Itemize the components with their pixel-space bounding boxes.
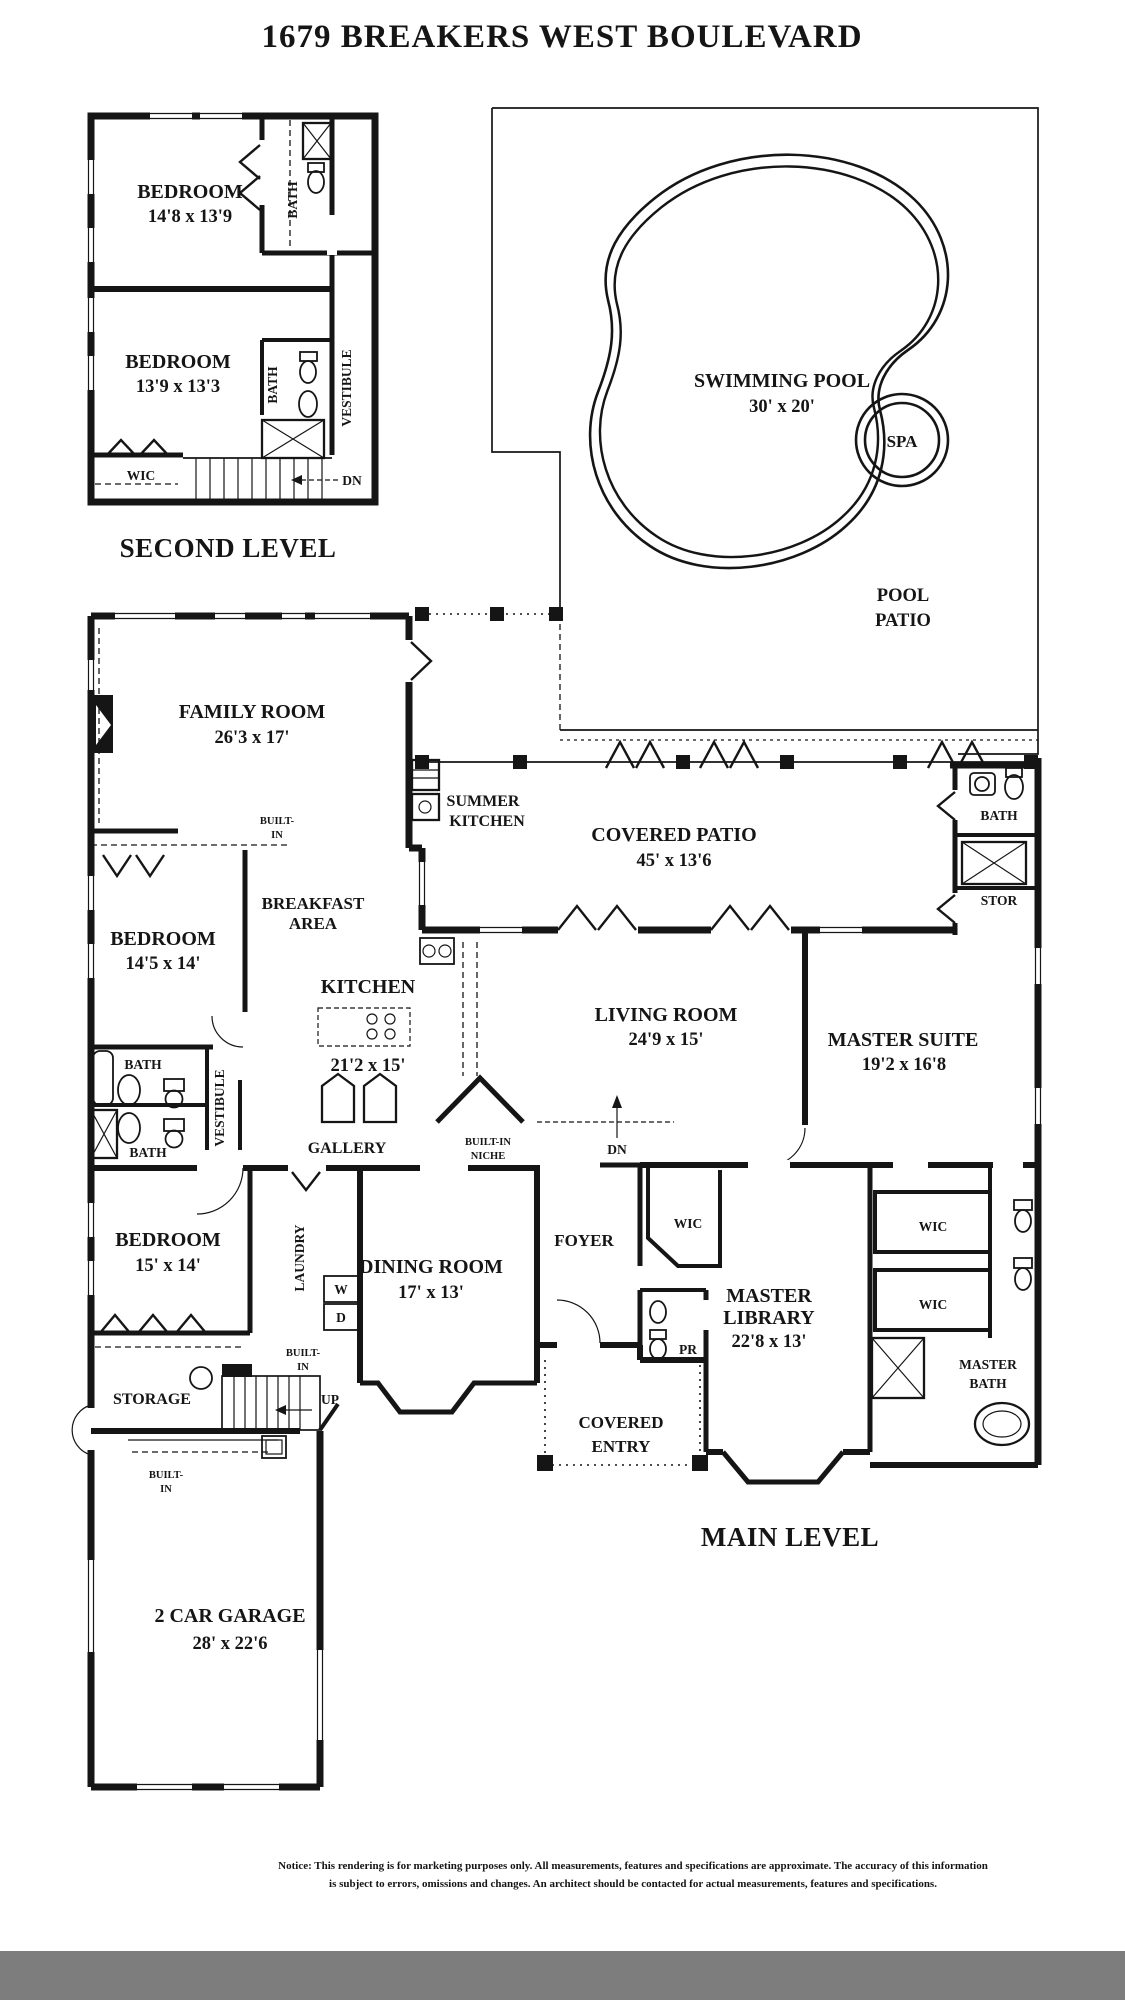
notice-line-2: is subject to errors, omissions and chan… [329, 1878, 937, 1890]
label-gallery: GALLERY [308, 1140, 387, 1157]
label-garage-dim: 28' x 22'6 [192, 1634, 267, 1654]
label-covered-entry-1: COVERED [578, 1413, 663, 1432]
french-door-icon [700, 742, 758, 768]
notice-text: Notice: This rendering is for marketing … [278, 1860, 988, 1890]
viewer-bottom-bar [0, 1951, 1125, 2000]
sink-icon [118, 1113, 140, 1143]
niche-wall [437, 1078, 523, 1122]
label-pool-patio-1: POOL [877, 586, 929, 606]
label-bedroom-d: BEDROOM [115, 1229, 221, 1251]
second-level-caption: SECOND LEVEL [120, 533, 337, 563]
bifold-door-icon [292, 1172, 320, 1190]
label-bath-c: BATH [124, 1057, 162, 1072]
label-living-room: LIVING ROOM [595, 1004, 738, 1026]
label-living-room-dim: 24'9 x 15' [628, 1030, 703, 1050]
notice-line-1: Notice: This rendering is for marketing … [278, 1860, 988, 1872]
bifold-door-icon [240, 145, 260, 210]
label-bath-b: BATH [265, 366, 280, 404]
label-master-suite: MASTER SUITE [828, 1029, 979, 1051]
label-vestibule-main: VESTIBULE [212, 1069, 227, 1146]
floorplan-drawing: 1679 BREAKERS WEST BOULEVARD [0, 0, 1125, 2000]
range-icon [420, 938, 454, 964]
label-dryer: D [336, 1310, 346, 1325]
bifold-door-icon [103, 855, 164, 876]
linen-closet-icon [91, 1110, 117, 1158]
door-arc [197, 1168, 243, 1214]
label-bedroom-c-dim: 14'5 x 14' [125, 954, 200, 974]
label-pool-patio-2: PATIO [875, 611, 931, 631]
label-built-in-niche-2: NICHE [471, 1151, 505, 1162]
label-master-suite-dim: 19'2 x 16'8 [862, 1055, 946, 1075]
label-dining-room: DINING ROOM [359, 1256, 503, 1278]
label-up: UP [321, 1392, 339, 1407]
sink-icon [303, 123, 331, 159]
second-level-plan: BEDROOM 14'8 x 13'9 BEDROOM 13'9 x 13'3 … [86, 111, 375, 563]
toilet-icon [1014, 1200, 1032, 1290]
main-level-plan: FAMILY ROOM 26'3 x 17' BUILT- IN SUMMER … [72, 611, 1043, 1792]
label-patio-bath: BATH [980, 808, 1018, 823]
label-built-in-family-1: BUILT- [260, 816, 295, 827]
french-door-icon [606, 742, 664, 768]
page-title: 1679 BREAKERS WEST BOULEVARD [261, 19, 862, 55]
utility-sink-icon [262, 1436, 286, 1458]
label-swimming-pool: SWIMMING POOL [694, 370, 870, 392]
label-breakfast-1: BREAKFAST [262, 894, 365, 913]
label-covered-entry-2: ENTRY [592, 1437, 651, 1456]
label-summer-kitchen-1: SUMMER [447, 793, 520, 810]
label-dn-2nd: DN [342, 473, 362, 488]
label-swimming-pool-dim: 30' x 20' [749, 397, 815, 417]
label-built-in-stairs-1: BUILT- [286, 1348, 321, 1359]
label-bath-d: BATH [129, 1145, 167, 1160]
label-master-library-1: MASTER [726, 1285, 812, 1307]
swimming-pool-shape [590, 155, 948, 568]
label-built-in-garage-2: IN [160, 1484, 172, 1495]
fireplace-icon [91, 695, 113, 753]
label-bedroom-c: BEDROOM [110, 928, 216, 950]
stairs-down [183, 458, 338, 500]
label-wic-master-a: WIC [919, 1219, 948, 1234]
garage-door [137, 1650, 325, 1792]
window [115, 611, 370, 621]
toilet-icon [308, 163, 324, 193]
label-garage: 2 CAR GARAGE [154, 1605, 305, 1627]
label-wic-2nd: WIC [127, 468, 156, 483]
closet-shelf-icon [262, 420, 324, 458]
label-family-room-dim: 26'3 x 17' [214, 728, 289, 748]
label-master-bath-1: MASTER [959, 1357, 1017, 1372]
door-arc [557, 1300, 600, 1343]
label-pr: PR [679, 1342, 697, 1357]
label-storage: STORAGE [113, 1391, 191, 1408]
label-family-room: FAMILY ROOM [179, 701, 326, 723]
label-spa: SPA [887, 432, 919, 451]
label-kitchen: KITCHEN [321, 976, 416, 998]
sink-icon [118, 1075, 140, 1105]
sink-icon [299, 391, 317, 417]
toilet-icon [164, 1079, 184, 1148]
cabinet-icon [322, 1074, 396, 1122]
pool-patio-area: SWIMMING POOL 30' x 20' SPA POOL PATIO [415, 108, 1038, 769]
label-bath-a: BATH [285, 181, 300, 219]
floorplan-page: 1679 BREAKERS WEST BOULEVARD [0, 0, 1125, 2000]
window-bay-icon [100, 1315, 206, 1333]
label-master-bath-2: BATH [969, 1376, 1007, 1391]
label-built-in-stairs-2: IN [297, 1362, 309, 1373]
label-bedroom-a-dim: 14'8 x 13'9 [148, 207, 232, 227]
label-dn-main: DN [607, 1142, 627, 1157]
label-laundry: LAUNDRY [292, 1224, 307, 1291]
tub-icon [975, 1403, 1029, 1445]
label-master-library-dim: 22'8 x 13' [731, 1332, 806, 1352]
label-built-in-family-2: IN [271, 830, 283, 841]
label-summer-kitchen-2: KITCHEN [449, 813, 525, 830]
window [86, 111, 242, 390]
label-master-library-2: LIBRARY [723, 1307, 815, 1329]
label-covered-patio: COVERED PATIO [591, 824, 756, 846]
water-heater-icon [190, 1367, 212, 1389]
main-level-caption: MAIN LEVEL [701, 1522, 879, 1552]
toilet-icon [650, 1301, 666, 1359]
label-built-in-niche-1: BUILT-IN [465, 1137, 511, 1148]
tub-icon [93, 1051, 113, 1105]
label-bedroom-a: BEDROOM [137, 181, 243, 203]
bay-window-wall [723, 1452, 843, 1482]
label-bedroom-b: BEDROOM [125, 351, 231, 373]
label-washer: W [334, 1282, 348, 1297]
label-covered-patio-dim: 45' x 13'6 [636, 851, 711, 871]
kitchen-island [318, 1008, 410, 1046]
door-arc [212, 1016, 243, 1047]
label-breakfast-2: AREA [289, 914, 338, 933]
label-bedroom-b-dim: 13'9 x 13'3 [136, 377, 220, 397]
label-stor: STOR [981, 893, 1018, 908]
label-wic-foyer: WIC [674, 1216, 703, 1231]
door-icon [411, 642, 431, 680]
label-vestibule-2nd: VESTIBULE [339, 349, 354, 426]
label-foyer: FOYER [554, 1231, 614, 1250]
toilet-icon [300, 352, 317, 383]
label-built-in-garage-1: BUILT- [149, 1470, 184, 1481]
label-kitchen-dim: 21'2 x 15' [330, 1056, 405, 1076]
label-wic-master-b: WIC [919, 1297, 948, 1312]
label-bedroom-d-dim: 15' x 14' [135, 1256, 201, 1276]
label-dining-room-dim: 17' x 13' [398, 1283, 464, 1303]
